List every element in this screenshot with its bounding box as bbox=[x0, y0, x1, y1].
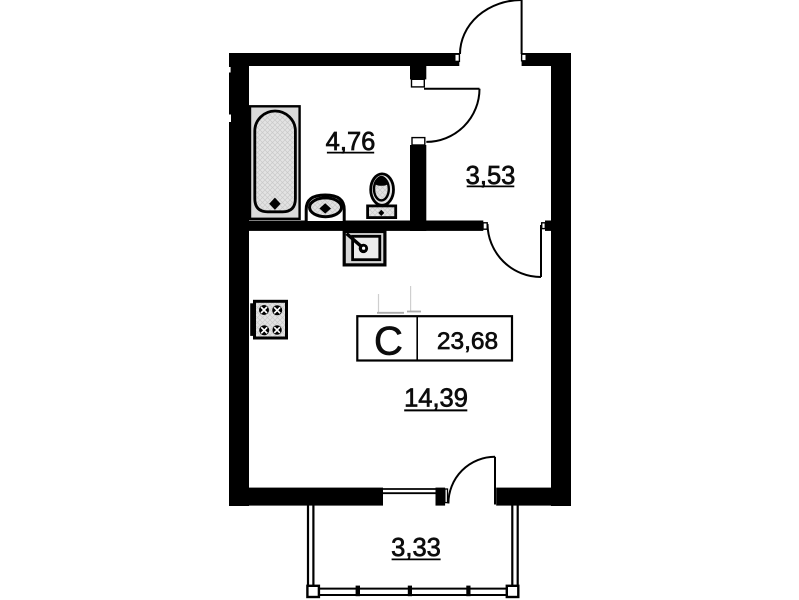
svg-text:С: С bbox=[374, 319, 403, 363]
svg-text:14,39: 14,39 bbox=[404, 385, 468, 413]
svg-text:23,68: 23,68 bbox=[437, 328, 498, 355]
svg-text:3,33: 3,33 bbox=[391, 534, 441, 562]
